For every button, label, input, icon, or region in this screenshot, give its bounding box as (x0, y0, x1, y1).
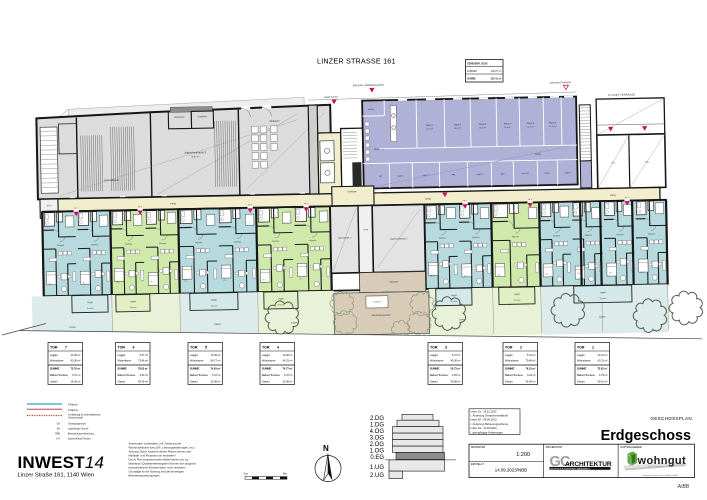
svg-text:EINGANG GEMEINSFLÄCHE: EINGANG GEMEINSFLÄCHE (353, 84, 384, 88)
svg-text:ERSTELLT: ERSTELLT (471, 462, 484, 466)
svg-text:Balkon/Terrasse: Balkon/Terrasse (190, 374, 209, 377)
svg-text:Illustration! Quadratmeteranga: Illustration! Quadratmeterangaben können… (129, 462, 197, 466)
svg-text:3-Räume: 3-Räume (68, 409, 79, 412)
svg-text:Index 02 - 06.06.2023: Index 02 - 06.06.2023 (471, 418, 498, 422)
svg-text:3.OG: 3.OG (370, 435, 385, 441)
svg-text:30.45 m²: 30.45 m² (211, 381, 221, 384)
svg-text:Raum 4: Raum 4 (504, 123, 512, 125)
svg-text:Nr 6: Nr 6 (138, 206, 141, 208)
svg-text:B a u t r ä g e r: B a u t r ä g e r (648, 465, 663, 468)
svg-text:Teekü.: Teekü. (545, 173, 551, 175)
svg-text:Maßstab- und Proportion an ver: Maßstab- und Proportion an verändern! (129, 454, 176, 458)
svg-text:16.46 m²: 16.46 m² (479, 126, 487, 129)
svg-text:5m: 5m (283, 472, 288, 476)
svg-text:Zi 1: Zi 1 (224, 280, 227, 282)
svg-text:21.07 m²: 21.07 m² (426, 127, 434, 130)
svg-text:5-Räume: 5-Räume (68, 404, 79, 407)
svg-text:Wohnkü.: Wohnkü. (195, 242, 203, 244)
svg-text:Wohnräume: Wohnräume (50, 360, 64, 363)
svg-text:wohngut Projekt isons GmbH/ Gm: wohngut Projekt isons GmbH/ GmbH (642, 474, 678, 477)
svg-text:Haupt Tür AG: Haupt Tür AG (324, 96, 338, 99)
svg-text:OK: OK (57, 423, 61, 426)
svg-text:64.31 m²: 64.31 m² (283, 360, 293, 363)
svg-text:Nr 2: Nr 2 (528, 199, 531, 201)
svg-text:20.24 m²: 20.24 m² (454, 127, 462, 130)
svg-text:Zi 1: Zi 1 (299, 278, 302, 280)
svg-text:2: 2 (520, 346, 522, 350)
svg-text:SUMME: SUMME (467, 78, 476, 81)
svg-text:Garten: Garten (69, 326, 77, 329)
svg-text:Wohnkü.: Wohnkü. (512, 236, 520, 238)
svg-text:GESCHOSSPLAN: GESCHOSSPLAN (650, 416, 692, 421)
svg-text:Terrasse: Terrasse (130, 307, 137, 309)
svg-text:TOR: TOR (262, 346, 270, 350)
svg-text:SUMME: SUMME (118, 368, 128, 371)
svg-text:Raum 2: Raum 2 (454, 124, 462, 126)
svg-text:Terrasse: Terrasse (599, 298, 606, 300)
svg-text:Wohnräume: Wohnräume (577, 360, 591, 363)
svg-text:AUFTRAGGEBER: AUFTRAGGEBER (620, 445, 642, 449)
svg-text:Raum 6: Raum 6 (549, 122, 557, 124)
svg-text:Garten: Garten (214, 323, 222, 326)
svg-text:bodentiefe(s) Fenster: bodentiefe(s) Fenster (68, 438, 91, 441)
svg-text:4.OG: 4.OG (370, 429, 385, 435)
svg-text:ausmaßnahmen Erfordernissen no: ausmaßnahmen Erfordernissen noch verände… (129, 466, 187, 470)
svg-text:Wohnräume: Wohnräume (190, 360, 204, 363)
svg-text:Raum 1: Raum 1 (426, 125, 434, 127)
svg-text:Loggia: Loggia (50, 354, 58, 357)
svg-text:10.40 m²: 10.40 m² (71, 354, 81, 357)
svg-text:Zi 1: Zi 1 (577, 273, 580, 275)
svg-text:TOR: TOR (190, 346, 198, 350)
svg-text:3.24 m²: 3.24 m² (527, 374, 536, 377)
svg-text:Wohnkü.: Wohnkü. (91, 244, 99, 246)
svg-text:Wohnkü.: Wohnkü. (439, 238, 447, 240)
svg-text:5.31 m²: 5.31 m² (527, 354, 536, 357)
svg-text:40.85 m²: 40.85 m² (451, 381, 461, 384)
svg-text:59.41 m²: 59.41 m² (598, 381, 608, 384)
svg-text:Wohnkü.: Wohnkü. (234, 241, 242, 243)
svg-text:Gang: Gang (535, 154, 541, 156)
svg-text:Kleinkinderspielplatz: Kleinkinderspielplatz (372, 314, 391, 317)
svg-text:5: 5 (205, 346, 207, 350)
svg-text:5.37 m²: 5.37 m² (140, 354, 149, 357)
svg-text:A/BB: A/BB (677, 484, 690, 490)
svg-text:Abstellraum: Abstellraum (174, 116, 185, 119)
svg-text:230.07 m²: 230.07 m² (491, 70, 502, 73)
svg-text:10.46 m²: 10.46 m² (283, 354, 293, 357)
svg-text:1m: 1m (244, 472, 249, 476)
svg-text:Wohnnutzflächen bzw.±2%, Leist: Wohnnutzflächen bzw.±2%, Leistungsänderu… (129, 446, 195, 450)
svg-text:74.63 m²: 74.63 m² (210, 367, 220, 371)
svg-text:Zi 1: Zi 1 (117, 282, 120, 284)
svg-text:Index 03 - 11.09.2023: Index 03 - 11.09.2023 (471, 426, 497, 430)
svg-text:PROJEKTANT: PROJEKTANT (546, 445, 563, 449)
svg-text:TOR: TOR (50, 346, 58, 350)
svg-text:ungehörige Grenze: ungehörige Grenze (68, 428, 89, 431)
svg-text:73.46 m²: 73.46 m² (138, 360, 148, 363)
svg-text:Umlegungsnutze: Umlegungsnutze (68, 423, 87, 426)
svg-text:INWEST14: INWEST14 (18, 453, 105, 472)
svg-text:Loggia: Loggia (430, 354, 438, 357)
svg-text:64.17 m²: 64.17 m² (211, 360, 221, 363)
svg-text:45.54 m²: 45.54 m² (526, 381, 536, 384)
svg-text:15.25 m²: 15.25 m² (527, 125, 535, 128)
svg-text:14.25 m²: 14.25 m² (549, 125, 557, 128)
svg-text:Loggia: Loggia (600, 292, 607, 294)
svg-text:SUMME: SUMME (190, 368, 200, 371)
svg-text:Zi 1: Zi 1 (609, 272, 612, 274)
svg-text:Nr 7: Nr 7 (74, 208, 77, 210)
svg-text:Raum 3: Raum 3 (479, 124, 487, 126)
svg-text:45.36 m²: 45.36 m² (451, 360, 461, 363)
svg-text:50.73 m²: 50.73 m² (450, 367, 460, 371)
svg-text:Loggia: Loggia (87, 302, 94, 304)
svg-text:ARCHITEKTUR ENGINEERING MANA: ARCHITEKTUR ENGINEERING MANAGEMENT (551, 467, 591, 470)
svg-text:Zi 1: Zi 1 (497, 275, 500, 277)
svg-text:2.UG: 2.UG (370, 473, 384, 479)
svg-text:74.77 m²: 74.77 m² (282, 367, 292, 371)
svg-text:Garten: Garten (190, 381, 198, 384)
svg-text:Garten: Garten (118, 381, 126, 384)
svg-text:14.09.2023/NBB: 14.09.2023/NBB (495, 468, 527, 473)
svg-text:Wohnkü.: Wohnkü. (125, 244, 133, 246)
svg-text:Nr 3: Nr 3 (463, 200, 466, 202)
svg-text:Wohnkü.: Wohnkü. (553, 235, 561, 237)
svg-text:4.79 m²: 4.79 m² (599, 374, 608, 377)
svg-text:Raum 5: Raum 5 (527, 123, 535, 125)
svg-text:Balkon/Terrasse: Balkon/Terrasse (50, 374, 69, 377)
svg-text:TOR: TOR (577, 346, 585, 350)
svg-text:Loggia: Loggia (451, 295, 458, 297)
svg-text:Garten: Garten (505, 381, 513, 384)
svg-text:BFB: BFB (55, 433, 60, 436)
svg-text:3.30 m²: 3.30 m² (140, 374, 149, 377)
svg-text:Garten: Garten (577, 381, 585, 384)
svg-text:Wohnräume: Wohnräume (505, 360, 519, 363)
svg-text:1:200: 1:200 (516, 452, 530, 458)
svg-text:10.31 m²: 10.31 m² (598, 354, 608, 357)
svg-text:Loggia: Loggia (211, 299, 218, 301)
svg-text:SUMME: SUMME (430, 368, 440, 371)
svg-text:Erdgeschoss: Erdgeschoss (601, 428, 691, 444)
svg-text:Wohnkü.: Wohnkü. (159, 243, 167, 245)
svg-text:Terrasse: Terrasse (451, 301, 458, 303)
svg-text:Terrasse: Terrasse (389, 280, 398, 283)
svg-text:1.OG: 1.OG (370, 448, 385, 454)
svg-text:Gang: Gang (363, 229, 368, 231)
svg-text:Terrasse: Terrasse (278, 304, 285, 306)
svg-text:16.30 m²: 16.30 m² (71, 381, 81, 384)
svg-text:b/T: b/T (57, 438, 61, 441)
svg-text:Balkon/Terrasse: Balkon/Terrasse (262, 374, 281, 377)
svg-text:64.76 m²: 64.76 m² (138, 381, 148, 384)
svg-text:Zi 1: Zi 1 (49, 283, 52, 285)
svg-text:AR2: AR2 (501, 172, 505, 175)
svg-text:Wohnkü.: Wohnkü. (309, 240, 317, 242)
svg-text:Lager 3: Lager 3 (476, 173, 482, 176)
svg-text:Zi 1: Zi 1 (430, 276, 433, 278)
svg-text:Wohnkü.: Wohnkü. (57, 245, 65, 247)
svg-text:Garten: Garten (262, 381, 270, 384)
svg-text:3.47 m²: 3.47 m² (212, 374, 221, 377)
svg-text:Terrasse: Terrasse (211, 305, 218, 307)
svg-text:SUMME: SUMME (262, 368, 272, 371)
svg-text:1.UG: 1.UG (370, 465, 384, 471)
svg-text:i. Änderung Bebauungsschema: i. Änderung Bebauungsschema (471, 422, 509, 426)
svg-text:Nr 5: Nr 5 (248, 204, 251, 206)
svg-text:Balkon/Terrasse: Balkon/Terrasse (577, 374, 596, 377)
svg-text:Küche: Küche (368, 109, 375, 111)
svg-text:KURSEN: KURSEN (467, 70, 477, 73)
svg-text:Lager 1: Lager 1 (397, 174, 403, 177)
svg-text:Wohnkü.: Wohnkü. (648, 234, 656, 236)
svg-text:30.45 m²: 30.45 m² (283, 381, 293, 384)
svg-text:3: 3 (445, 346, 447, 350)
svg-text:6: 6 (133, 346, 135, 350)
svg-text:Wohnkü.: Wohnkü. (472, 237, 480, 239)
svg-text:230.41 m²: 230.41 m² (491, 77, 502, 81)
svg-text:i. Änderung Gesamtwohnfläche: i. Änderung Gesamtwohnfläche (471, 414, 509, 418)
svg-text:Gang: Gang (425, 198, 431, 200)
svg-text:Die im Plan eingezeichneten Mö: Die im Plan eingezeichneten Möbel dienen… (129, 458, 189, 462)
svg-text:Loggia: Loggia (262, 354, 270, 357)
svg-text:1: 1 (592, 346, 594, 350)
svg-text:Zi 1: Zi 1 (641, 272, 644, 274)
svg-text:AK: AK (57, 428, 61, 431)
svg-text:SUMME: SUMME (50, 368, 60, 371)
svg-text:10.46 m²: 10.46 m² (211, 354, 221, 357)
svg-text:Garten: Garten (50, 381, 58, 384)
svg-text:Behördengenehmigungen.: Behördengenehmigungen. (129, 474, 161, 478)
svg-text:Zi 1: Zi 1 (464, 275, 467, 277)
svg-text:Balkon/Terrasse: Balkon/Terrasse (505, 374, 524, 377)
svg-text:7: 7 (65, 346, 67, 350)
svg-text:Fahrradraum: Fahrradraum (104, 178, 119, 182)
svg-text:Loggia: Loggia (130, 301, 137, 303)
svg-text:78.83 m²: 78.83 m² (138, 367, 148, 371)
svg-text:Zi 1: Zi 1 (185, 281, 188, 283)
svg-text:Garten: Garten (430, 381, 438, 384)
svg-text:optionaler EINGANG: optionaler EINGANG (550, 81, 572, 84)
svg-text:3.25 m²: 3.25 m² (452, 374, 461, 377)
svg-text:Index 01 - 16.11.2022: Index 01 - 16.11.2022 (471, 409, 497, 413)
svg-text:Wohnkü.: Wohnkü. (585, 235, 593, 237)
svg-text:0.EG: 0.EG (370, 455, 384, 461)
svg-text:1.DG: 1.DG (370, 422, 384, 428)
svg-text:73.62 m²: 73.62 m² (597, 367, 607, 371)
svg-text:2.DG: 2.DG (370, 416, 384, 422)
svg-text:Loggia: Loggia (190, 354, 198, 357)
svg-text:wohngut: wohngut (637, 455, 687, 467)
svg-text:TOR: TOR (505, 346, 513, 350)
svg-text:Linzer Straße 161, 1140 Wien: Linzer Straße 161, 1140 Wien (18, 473, 95, 479)
svg-text:Müllablass: Müllablass (198, 116, 207, 118)
svg-text:Brandschutzverkleidung: Brandschutzverkleidung (68, 433, 94, 436)
svg-text:Schleuse: Schleuse (347, 191, 357, 193)
svg-text:73.76 m²: 73.76 m² (70, 367, 80, 371)
svg-text:LINZER STRASSE 161: LINZER STRASSE 161 (317, 57, 396, 66)
svg-text:Wohnkü.: Wohnkü. (272, 241, 280, 243)
svg-text:N: N (323, 444, 329, 453)
svg-text:Zi 1: Zi 1 (83, 282, 86, 284)
svg-text:70.84 m²: 70.84 m² (526, 360, 536, 363)
svg-text:Zi 1: Zi 1 (545, 274, 548, 276)
svg-text:14.48 m²: 14.48 m² (504, 126, 512, 129)
svg-text:Gemeinschaft: Gemeinschaft (68, 417, 83, 420)
svg-text:SUMME: SUMME (505, 368, 515, 371)
svg-text:Loggia: Loggia (505, 354, 513, 357)
svg-text:Grundlage für die Nutzung sind: Grundlage für die Nutzung sind die derze… (129, 470, 185, 474)
svg-text:Garten: Garten (599, 315, 607, 318)
svg-text:Wohnräume: Wohnräume (262, 360, 276, 363)
svg-text:2.OG: 2.OG (370, 442, 385, 448)
svg-text:3.37 m²: 3.37 m² (72, 374, 81, 377)
svg-text:76.81 m²: 76.81 m² (191, 155, 200, 158)
svg-text:Loggia: Loggia (278, 298, 285, 300)
svg-text:MASSSTAB: MASSSTAB (471, 445, 485, 449)
svg-text:SUMME: SUMME (577, 368, 587, 371)
svg-text:Loggia: Loggia (118, 354, 126, 357)
svg-text:Loggia: Loggia (577, 354, 585, 357)
svg-text:Sandkiste: Sandkiste (373, 300, 381, 303)
svg-text:Müllraum: Müllraum (270, 120, 280, 123)
svg-text:AR1: AR1 (452, 173, 456, 176)
svg-text:Terrasse: Terrasse (87, 308, 94, 310)
svg-text:63.31 m²: 63.31 m² (598, 360, 608, 363)
svg-text:Wohnräume: Wohnräume (118, 360, 132, 363)
svg-text:Lager 4: Lager 4 (564, 171, 570, 174)
svg-text:Balkon/Terrasse: Balkon/Terrasse (430, 374, 449, 377)
svg-text:Wohnkü.: Wohnkü. (617, 234, 625, 236)
svg-text:4: 4 (277, 346, 279, 350)
svg-text:Gang: Gang (170, 203, 176, 205)
svg-text:Änderungen vorbehalten (z.B. Ä: Änderungen vorbehalten (z.B. Änderung de… (129, 442, 182, 446)
svg-text:63.36 m²: 63.36 m² (71, 360, 81, 363)
svg-text:Loggia: Loggia (514, 294, 521, 296)
svg-text:Achtung: Durch Kopieren dieses: Achtung: Durch Kopieren dieses Planes kö… (129, 450, 192, 454)
svg-text:Zi 1: Zi 1 (151, 281, 154, 283)
svg-text:Nr 4: Nr 4 (304, 203, 307, 205)
svg-text:Nr 1: Nr 1 (625, 197, 628, 199)
svg-text:Kas. WC: Kas. WC (522, 173, 530, 175)
svg-text:76.15 m²: 76.15 m² (525, 367, 535, 371)
svg-text:Wohnräume: Wohnräume (430, 360, 444, 363)
svg-text:GEMEINSFLÄCHE: GEMEINSFLÄCHE (467, 63, 488, 66)
svg-text:5.37 m²: 5.37 m² (452, 354, 461, 357)
svg-text:TOR: TOR (118, 346, 126, 350)
svg-text:E100: E100 (47, 205, 51, 207)
svg-text:Terrasse: Terrasse (513, 300, 520, 302)
svg-text:Zi 1: Zi 1 (262, 279, 265, 281)
svg-text:i. geringfügige Änderungen: i. geringfügige Änderungen (471, 430, 504, 434)
svg-text:ZU MIET TERRASSE: ZU MIET TERRASSE (608, 93, 635, 97)
svg-text:TOR: TOR (430, 346, 438, 350)
svg-text:ARCHITEKTUR: ARCHITEKTUR (565, 461, 612, 468)
svg-text:Balkon/Terrasse: Balkon/Terrasse (118, 374, 137, 377)
svg-text:Garten: Garten (291, 321, 299, 324)
svg-text:Gang: Gang (610, 195, 616, 197)
svg-text:3.47 m²: 3.47 m² (284, 374, 293, 377)
